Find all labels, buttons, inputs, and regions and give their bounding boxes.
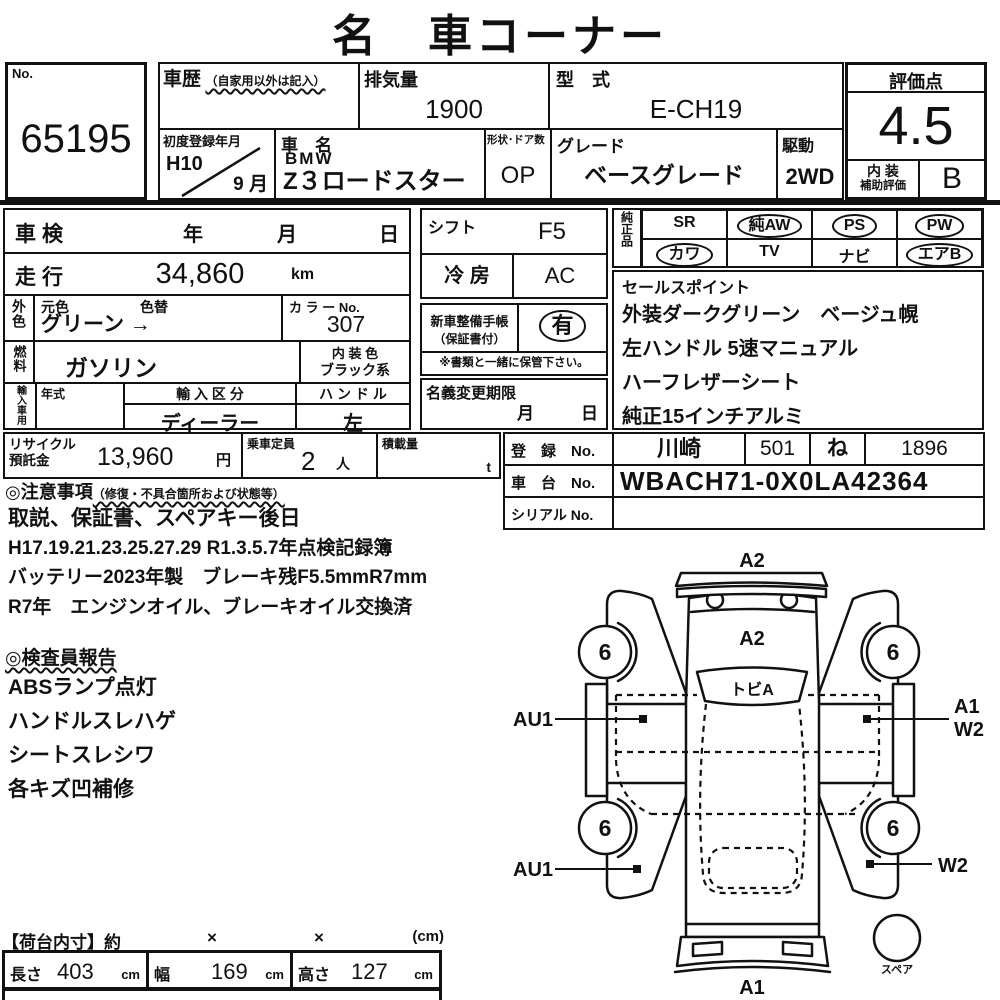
displacement-value: 1900 — [360, 94, 548, 125]
aircon-value: AC — [514, 255, 606, 297]
fuel-label-cell: 燃料 — [3, 340, 35, 384]
part-aw: 純AW — [727, 210, 812, 239]
color-no-value: 307 — [283, 311, 409, 338]
load-cell: 積載量 t — [376, 432, 501, 479]
inspector-line: ABSランプ点灯 — [8, 671, 157, 701]
model-code-cell: 型 式 E-CH19 — [548, 62, 844, 130]
lot-number-box: No. 65195 — [5, 62, 147, 200]
mileage-unit: km — [291, 266, 314, 284]
car-damage-diagram: A2 A2 トビA 6 6 6 6 AU1 AU1 A1 W2 W2 A1 スペ… — [500, 552, 1000, 1000]
title-transfer-label: 名義変更期限 — [426, 382, 516, 403]
notes-heading-note: （修復・不具合箇所および状態等） — [93, 487, 285, 501]
title-transfer-cell: 名義変更期限 月 日 — [420, 378, 608, 430]
service-book-value: 有 — [519, 305, 606, 351]
notes-heading: ◎注意事項 — [5, 482, 93, 502]
interior-score-label: 内 装 補助評価 — [848, 161, 920, 197]
ext-color-label: 外色 — [9, 299, 29, 329]
recycle-value: 13,960 — [97, 443, 173, 472]
cargo-width-label: 幅 — [154, 961, 170, 985]
cargo-height-label: 高さ — [298, 961, 330, 985]
fuel-cell: ガソリン — [33, 340, 301, 384]
interior-color-value: ブラック系 — [301, 360, 409, 380]
right-bottom-mark: W2 — [938, 855, 968, 877]
leader-dot — [640, 716, 646, 722]
part-sr: SR — [642, 210, 727, 239]
inspector-line: シートスレシワ — [8, 739, 155, 769]
recycle-label: リサイクル 預託金 — [9, 437, 76, 469]
registration-number: 1896 — [864, 434, 983, 464]
rear-bumper-mark: A2 — [739, 552, 765, 572]
recycle-cell: リサイクル 預託金 13,960 円 — [3, 432, 243, 479]
note-line: バッテリー2023年製 ブレーキ残F5.5mmR7mm — [8, 562, 427, 589]
mileage-value: 34,860 — [115, 258, 285, 291]
inspector-line: ハンドルスレハゲ — [8, 705, 176, 735]
rear-bumper — [676, 573, 827, 586]
model-code-label: 型 式 — [556, 66, 610, 92]
color-no-cell: カ ラ ー No. 307 — [281, 294, 411, 342]
shaken-day: 日 — [379, 218, 399, 247]
load-unit: t — [486, 459, 491, 475]
note-line: H17.19.21.23.25.27.29 R1.3.5.7年点検記録簿 — [8, 533, 392, 560]
year-model-label: 年式 — [41, 385, 65, 402]
grade-value: ベースグレード — [552, 156, 776, 190]
drive-value: 2WD — [778, 164, 842, 190]
cargo-height-unit: cm — [414, 967, 433, 982]
serial-row: シリアル No. — [503, 496, 985, 530]
score-value: 4.5 — [848, 93, 984, 161]
grade-cell: グレード ベースグレード — [550, 128, 778, 200]
lot-number-label: No. — [12, 66, 33, 81]
sales-points-heading: セールスポイント — [622, 274, 974, 298]
ext-color-value: グリーン → — [41, 308, 151, 338]
part-airb: エアB — [897, 239, 982, 268]
genuine-parts-label: 純正品 — [614, 210, 642, 266]
sales-points-box: セールスポイント 外装ダークグリーン ベージュ幌 左ハンドル 5速マニュアル ハ… — [612, 270, 984, 430]
ext-color-cell: 元色 色替 グリーン → — [33, 294, 283, 342]
mileage-label: 走行 — [15, 261, 69, 291]
note-line: 取説、保証書、スペアキー後日 — [8, 502, 301, 532]
registration-kana: ね — [809, 434, 864, 464]
model-code-value: E-CH19 — [550, 94, 842, 125]
import-type-cell: 輸 入 区 分 ディーラー — [123, 382, 297, 430]
body-shape-value: OP — [486, 162, 550, 190]
cargo-height-value: 127 — [351, 959, 388, 985]
genuine-parts-table: 純正品 SR 純AW PS PW カワ TV ナビ エアB — [612, 208, 984, 268]
notes-heading-row: ◎注意事項（修復・不具合箇所および状態等） — [5, 478, 285, 504]
genuine-parts-grid: SR 純AW PS PW カワ TV ナビ エアB — [642, 210, 982, 266]
front-bumper-mark: A1 — [739, 977, 765, 999]
page-title: 名 車コーナー — [0, 0, 1000, 64]
part-tv: TV — [727, 239, 812, 268]
part-ps: PS — [812, 210, 897, 239]
capacity-unit: 人 — [336, 454, 350, 474]
cargo-width-cell: 幅 169 cm — [146, 950, 293, 990]
tire-mark: 6 — [887, 639, 900, 665]
registration-area: 川崎 — [612, 434, 744, 464]
serial-value — [612, 498, 983, 528]
fuel-label: 燃料 — [10, 345, 29, 373]
body-shape-label: 形状･ドア数 — [487, 132, 545, 147]
aircon-label: 冷 房 — [422, 255, 514, 297]
inspector-heading: ◎検査員報告 — [5, 643, 117, 670]
registration-row: 登 録 No. 川崎 501 ね 1896 — [503, 432, 985, 466]
grade-label: グレード — [557, 132, 625, 157]
mileage-row: 走行 34,860 km — [3, 252, 411, 296]
car-model: Z３ロードスター — [283, 161, 466, 196]
interior-score-value: B — [920, 161, 984, 197]
cargo-length-unit: cm — [121, 967, 140, 982]
divider — [0, 200, 1000, 205]
shift-label: シフト — [428, 214, 476, 238]
rocker-right — [893, 684, 914, 796]
recycle-unit: 円 — [216, 449, 231, 470]
registration-label: 登 録 No. — [511, 440, 595, 461]
car-name-cell: 車 名 BMW Z３ロードスター — [274, 128, 486, 200]
handle-cell: ハ ン ド ル 左 — [295, 382, 411, 430]
chassis-row: 車 台 No. WBACH71-0X0LA42364 — [503, 464, 985, 498]
part-kawa: カワ — [642, 239, 727, 268]
part-pw: PW — [897, 210, 982, 239]
sales-point-line: 外装ダークグリーン ベージュ幌 — [622, 298, 974, 332]
tire-mark: 6 — [887, 815, 900, 841]
drive-cell: 駆動 2WD — [776, 128, 844, 200]
shaken-month: 月 — [277, 218, 297, 247]
first-registration-year: H10 — [166, 153, 203, 176]
cargo-heading-row: 【荷台内寸】約 × × (cm) — [2, 928, 444, 948]
cargo-length-value: 403 — [57, 959, 94, 985]
title-transfer-month: 月 — [517, 399, 534, 424]
shaken-label: 車検 — [15, 218, 69, 248]
year-model-cell: 年式 — [35, 382, 125, 430]
spare-tire-label: スペア — [881, 963, 913, 976]
cargo-unit: (cm) — [412, 928, 444, 945]
hood-mark: A2 — [739, 628, 765, 650]
tire-mark: 6 — [599, 815, 612, 841]
capacity-label: 乗車定員 — [247, 435, 295, 452]
first-registration-month: 9 月 — [233, 169, 268, 196]
cargo-height-cell: 高さ 127 cm — [290, 950, 442, 990]
shift-value: F5 — [538, 218, 566, 246]
sales-point-line: 左ハンドル 5速マニュアル — [622, 332, 974, 366]
sales-point-line: ハーフレザーシート — [622, 366, 974, 400]
part-navi: ナビ — [812, 239, 897, 268]
left-bottom-mark: AU1 — [513, 859, 553, 881]
registration-class: 501 — [744, 434, 809, 464]
cargo-x1: × — [207, 928, 217, 948]
chassis-label: 車 台 No. — [511, 472, 595, 493]
title-transfer-day: 日 — [581, 399, 598, 424]
handle-label: ハ ン ド ル — [297, 384, 409, 405]
import-label: 輸入車用 — [13, 385, 28, 425]
serial-label: シリアル No. — [511, 505, 593, 525]
service-book-label: 新車整備手帳 （保証書付） — [422, 305, 519, 351]
leader-dot — [867, 861, 873, 867]
lot-number-value: 65195 — [8, 117, 144, 162]
body-shape-cell: 形状･ドア数 OP — [484, 128, 552, 200]
cargo-length-label: 長さ — [10, 961, 42, 985]
load-label: 積載量 — [382, 435, 418, 452]
auction-sheet: 名 車コーナー No. 65195 車歴 （自家用以外は記入） 排気量 1900… — [0, 0, 1000, 1000]
front-bumper — [677, 937, 828, 966]
sales-point-line: 純正15インチアルミ — [622, 400, 974, 434]
chassis-value: WBACH71-0X0LA42364 — [612, 466, 983, 496]
history-note: （自家用以外は記入） — [205, 74, 325, 88]
score-box: 評価点 4.5 内 装 補助評価 B — [845, 62, 987, 200]
front-bumper-lip — [675, 967, 830, 972]
keep-note: ※書類と一緒に保管下さい。 — [420, 351, 608, 376]
cargo-x2: × — [314, 928, 324, 948]
history-label: 車歴 — [163, 69, 201, 90]
rocker-left — [586, 684, 607, 796]
right-top-mark-2: W2 — [954, 719, 984, 741]
tire-mark: 6 — [599, 639, 612, 665]
cargo-width-unit: cm — [265, 967, 284, 982]
interior-score-row: 内 装 補助評価 B — [848, 159, 984, 197]
cargo-next-row-partial — [2, 988, 442, 1000]
cargo-length-cell: 長さ 403 cm — [2, 950, 149, 990]
shift-cell: シフト F5 — [420, 208, 608, 255]
displacement-label: 排気量 — [364, 66, 418, 92]
leader-dot — [634, 866, 640, 872]
capacity-cell: 乗車定員 2 人 — [241, 432, 378, 479]
first-registration-cell: 初度登録年月 H10 9 月 — [158, 128, 276, 200]
shaken-year: 年 — [183, 218, 203, 247]
note-line: R7年 エンジンオイル、ブレーキオイル交換済 — [8, 592, 412, 619]
right-top-mark-1: A1 — [954, 696, 980, 718]
leader-dot — [864, 716, 870, 722]
windshield-mark: トビA — [730, 681, 774, 699]
ext-color-label-cell: 外色 — [3, 294, 35, 342]
interior-color-cell: 内 装 色 ブラック系 — [299, 340, 411, 384]
inspector-line: 各キズ凹補修 — [8, 773, 134, 803]
import-label-cell: 輸入車用 — [3, 382, 37, 430]
cargo-width-value: 169 — [211, 959, 248, 985]
capacity-value: 2 — [301, 446, 315, 477]
drive-label: 駆動 — [782, 132, 814, 156]
shaken-row: 車検 年 月 日 — [3, 208, 411, 254]
fuel-value: ガソリン — [65, 349, 157, 383]
spare-tire — [874, 915, 920, 961]
import-type-label: 輸 入 区 分 — [125, 384, 295, 405]
history-cell: 車歴 （自家用以外は記入） — [158, 62, 360, 130]
left-top-mark: AU1 — [513, 709, 553, 731]
score-label: 評価点 — [848, 65, 984, 93]
service-book-row: 新車整備手帳 （保証書付） 有 — [420, 303, 608, 353]
displacement-cell: 排気量 1900 — [358, 62, 550, 130]
aircon-row: 冷 房 AC — [420, 253, 608, 299]
